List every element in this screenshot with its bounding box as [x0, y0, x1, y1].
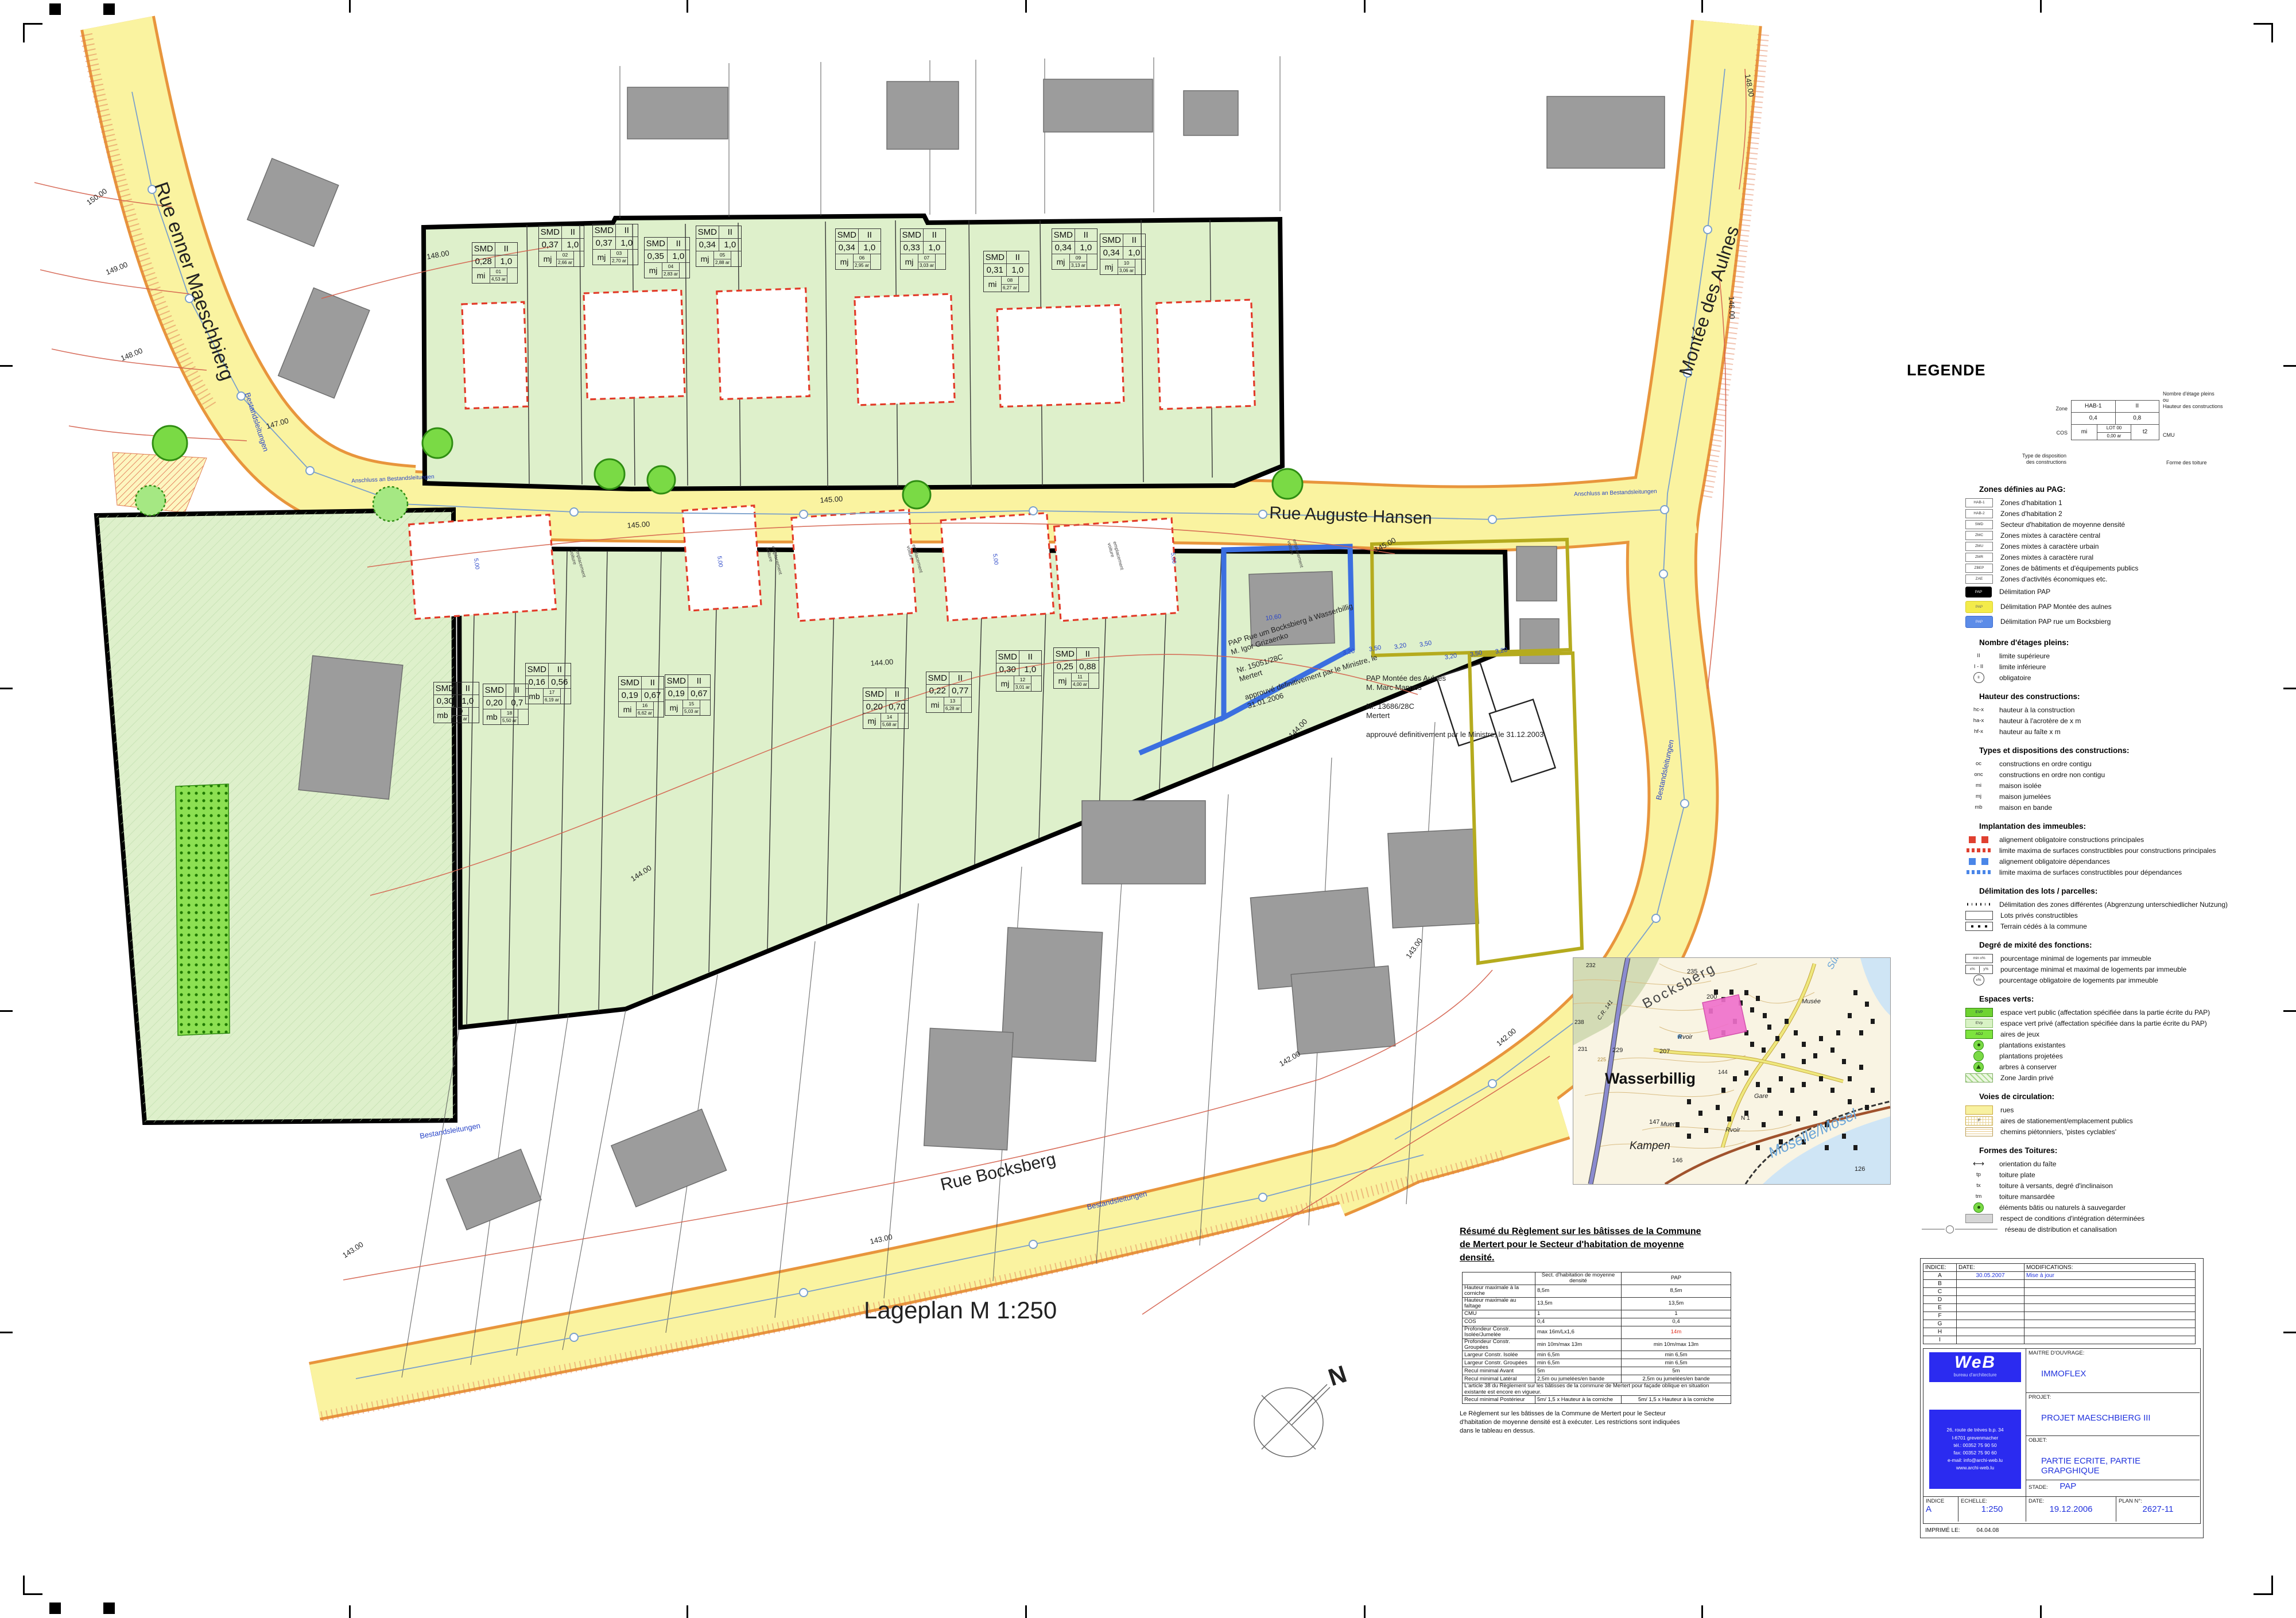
- splitbox-swatch-icon: x%y%: [1965, 965, 1993, 974]
- lot-row: 0,351,0: [645, 250, 689, 263]
- lot-number: 06: [854, 254, 870, 262]
- address-line: www.archi-web.lu: [1929, 1464, 2021, 1472]
- lot-mid: 103,06 ar: [1118, 259, 1135, 274]
- regulation-cell: COS: [1463, 1318, 1535, 1326]
- architect-logo: WeB bureau d'architecture: [1929, 1352, 2021, 1382]
- legend-item-label: pourcentage obligatoire de logements par…: [1999, 976, 2158, 984]
- architect-address: 26, route de trèves b.p. 34l-6701 greven…: [1929, 1410, 2021, 1489]
- legend-item-label: plantations projetées: [1999, 1052, 2063, 1060]
- inset-label-n235: 235: [1687, 968, 1697, 976]
- printed-date: IMPRIMÉ LE: 04.04.08: [1925, 1527, 1999, 1534]
- lot-storeys: II: [1007, 251, 1029, 263]
- lot-zone: SMD: [434, 682, 457, 694]
- lot-row: SMDII: [539, 226, 584, 239]
- logo-name: WeB: [1929, 1352, 2021, 1373]
- lot-row: 0,301,0: [434, 695, 479, 708]
- legend-item: tptoiture plate: [1965, 1169, 2296, 1180]
- zonebox-swatch-icon: ZMR: [1965, 553, 1993, 562]
- indices-row: C: [1923, 1288, 2196, 1296]
- inset-label-kampen: Kampen: [1630, 1140, 1670, 1153]
- reddash-swatch-icon: [1965, 847, 1992, 855]
- lot-cos: 0,37: [593, 237, 616, 249]
- lot-row: mb176,19 ar: [526, 689, 571, 704]
- lot-zone: SMD: [984, 251, 1007, 263]
- lot-label-03: SMDII0,371,0mj032,70 ar: [592, 224, 638, 265]
- lot-row: mj103,06 ar: [1100, 259, 1145, 274]
- legend-item-label: Secteur d'habitation de moyenne densité: [2000, 521, 2125, 529]
- lot-empty-cell: [700, 700, 710, 715]
- text-swatch-icon: ha-x: [1965, 717, 1992, 725]
- indices-date: [1957, 1312, 2024, 1320]
- lot-row: mj123,01 ar: [996, 676, 1041, 691]
- lot-cos: 0,34: [1100, 247, 1123, 259]
- lot-row: mi136,28 ar: [926, 697, 971, 712]
- indices-modification: [2024, 1320, 2196, 1328]
- lot-row: SMDII: [696, 226, 741, 239]
- lot-row: SMDII: [645, 238, 689, 250]
- lot-cos: 0,19: [665, 688, 688, 700]
- lot-area: 3,03 ar: [918, 262, 935, 270]
- legend-item: Lots privés constructibles: [1965, 910, 2296, 921]
- legend-item: plantations existantes: [1965, 1039, 2296, 1050]
- lot-row: SMDII: [619, 677, 664, 689]
- lot-type: mi: [984, 277, 1002, 292]
- key-callout-floors: Nombre d'étage pleins ou Hauteur des con…: [2163, 391, 2263, 409]
- legend-item: limite maxima de surfaces constructibles…: [1965, 845, 2296, 856]
- legend-item-label: réseau de distribution et canalisation: [2005, 1225, 2117, 1233]
- legend-item: réseau de distribution et canalisation: [1922, 1224, 2296, 1235]
- inset-label-wasserbillig: Wasserbillig: [1605, 1070, 1696, 1088]
- projet-value: PROJET MAESCHBIERG III: [2041, 1413, 2197, 1423]
- key-area: 0,00 ar: [2097, 433, 2131, 440]
- regulation-row: Recul minimal Avant5m5m: [1463, 1367, 1731, 1375]
- adj-swatch-icon: ADJ: [1965, 1030, 1993, 1039]
- lot-label-19: SMDII0,301,0mb194,55 ar: [433, 682, 479, 723]
- legend-item-label: maison jumelées: [1999, 793, 2051, 801]
- lot-number: 15: [683, 700, 700, 708]
- legend-item: plantations projetées: [1965, 1050, 2296, 1061]
- regulation-col-header: [1463, 1272, 1535, 1285]
- regulation-cell: 1: [1535, 1310, 1622, 1318]
- field-echelle: ECHELLE: 1:250: [1958, 1496, 2026, 1522]
- legend-item-label: toiture plate: [1999, 1171, 2035, 1179]
- indices-date: [1957, 1320, 2024, 1328]
- legend-item-label: alignement obligatoire constructions pri…: [1999, 836, 2144, 844]
- inset-label-muer: Muer: [1661, 1121, 1675, 1128]
- legend-item-label: Zones d'habitation 1: [2000, 499, 2062, 507]
- lot-label-04: SMDII0,351,0mj042,83 ar: [644, 237, 690, 278]
- lot-zone: SMD: [483, 684, 506, 696]
- indices-date: [1957, 1280, 2024, 1288]
- legend-item: alignement obligatoire dépendances: [1965, 856, 2296, 867]
- lot-storeys: II: [642, 677, 664, 689]
- lot-mid: 014,53 ar: [490, 268, 507, 283]
- field-stade: STADE: PAP: [2026, 1480, 2200, 1496]
- inset-label-n231: 231: [1578, 1046, 1588, 1053]
- legend-item: tmtoiture mansardée: [1965, 1191, 2296, 1202]
- indices-modification: Mise à jour: [2024, 1272, 2196, 1280]
- regulation-row: Largeur Constr. Isoléemin 6,5mmin 6,5m: [1463, 1351, 1731, 1359]
- inset-label-n146: 146: [1672, 1157, 1682, 1165]
- legend-item-label: toiture à versants, degré d'inclinaison: [1999, 1182, 2113, 1190]
- key-roof: t2: [2131, 425, 2159, 440]
- indices-header-row: INDICE:DATE:MODIFICATIONS:: [1923, 1264, 2196, 1272]
- lot-zone: SMD: [926, 672, 949, 684]
- legend-item: x%pourcentage obligatoire de logements p…: [1965, 975, 2296, 985]
- indices-row: B: [1923, 1280, 2196, 1288]
- lot-cmu: 0,67: [688, 688, 711, 700]
- circtext-swatch-icon: II: [1965, 674, 1992, 682]
- field-objet: OBJET: PARTIE ECRITE, PARTIE GRAPGHIQUE: [2026, 1436, 2200, 1480]
- indice-label: INDICE: [1926, 1498, 1956, 1504]
- legend-section-header: Délimitation des lots / parcelles:: [1979, 887, 2296, 895]
- regulation-row: L'article 38 du Règlement sur les bâtiss…: [1463, 1383, 1731, 1396]
- lot-row: 0,331,0: [901, 242, 945, 254]
- lot-zone: SMD: [1100, 234, 1123, 246]
- lot-row: mj062,95 ar: [836, 254, 881, 269]
- lot-cos: 0,19: [619, 689, 642, 701]
- plan-sheet: Rue enner MaeschbiergRue Auguste HansenM…: [0, 0, 2296, 1618]
- lot-zone: SMD: [645, 238, 668, 250]
- inset-label-n232: 232: [1586, 963, 1596, 969]
- text-swatch-icon: II: [1965, 652, 1992, 660]
- lot-row: SMDII: [984, 251, 1029, 264]
- lot-number: 13: [944, 697, 961, 705]
- lot-zone: SMD: [901, 229, 924, 241]
- lot-area: 6,62 ar: [637, 710, 653, 717]
- lot-zone: SMD: [696, 226, 719, 238]
- lot-empty-cell: [731, 251, 741, 266]
- lot-mid: 166,62 ar: [637, 702, 654, 717]
- regulation-row: Profondeur Constr. Groupéesmin 10m/max 1…: [1463, 1338, 1731, 1351]
- lot-empty-cell: [469, 708, 479, 723]
- lot-cmu: 0,56: [549, 676, 571, 688]
- circdot-swatch-icon: [1965, 1204, 1992, 1212]
- regulation-row: Profondeur Constr. Isolée/Jumeléemax 16m…: [1463, 1326, 1731, 1338]
- lot-row: SMDII: [836, 229, 881, 242]
- lot-storeys: II: [688, 675, 711, 687]
- lot-cos: 0,20: [483, 697, 506, 709]
- key-zone: HAB-1: [2072, 401, 2116, 412]
- lot-row: 0,311,0: [984, 264, 1029, 277]
- lot-row: mj042,83 ar: [645, 263, 689, 278]
- indices-letter: H: [1923, 1328, 1957, 1336]
- lot-cos: 0,31: [984, 264, 1007, 276]
- lot-empty-cell: [1135, 259, 1145, 274]
- legend-item-label: hauteur à l'acrotère de x m: [1999, 717, 2081, 725]
- lot-label-11: SMDII0,250,88mj114,00 ar: [1053, 647, 1099, 689]
- indices-date: [1957, 1296, 2024, 1304]
- regulation-cell: 2,5m ou jumelées/en bande: [1535, 1375, 1622, 1383]
- indices-date: [1957, 1288, 2024, 1296]
- lot-cos: 0,34: [696, 239, 719, 251]
- legend-item: Paires de stationement/emplacement publi…: [1965, 1115, 2296, 1126]
- inset-label-n225: 225: [1597, 1057, 1606, 1063]
- lot-row: 0,190,67: [619, 689, 664, 702]
- lot-row: mi014,53 ar: [472, 268, 517, 283]
- lot-mid: 032,70 ar: [611, 250, 628, 265]
- legend-item: PAPDélimitation PAP rue um Bocksbierg: [1965, 614, 2296, 629]
- plan-no-value: 2627-11: [2119, 1504, 2197, 1514]
- lot-mid: 062,95 ar: [854, 254, 871, 269]
- lot-empty-cell: [1089, 673, 1099, 688]
- lot-area: 4,55 ar: [452, 716, 468, 723]
- echelle-value: 1:250: [1961, 1504, 2023, 1514]
- legend-item-label: Zones mixtes à caractère rural: [2000, 553, 2093, 561]
- legend-item: min x%pourcentage minimal de logements p…: [1965, 953, 2296, 964]
- lot-number: 03: [611, 250, 627, 258]
- location-inset-map: BocksbergWasserbilligKampenMoselle/Mosel…: [1573, 957, 1891, 1185]
- lot-cos: 0,37: [539, 239, 562, 251]
- lot-storeys: II: [886, 688, 909, 700]
- title-block-main: WeB bureau d'architecture 26, route de t…: [1923, 1348, 2201, 1524]
- indices-date: [1957, 1336, 2024, 1344]
- lot-row: SMDII: [1054, 648, 1099, 661]
- lot-zone: SMD: [836, 229, 859, 241]
- circtri-swatch-icon: [1965, 1063, 1992, 1071]
- indices-modification: [2024, 1288, 2196, 1296]
- legend-item: IIobligatoire: [1965, 672, 2296, 683]
- inset-label-n200: 200: [1707, 994, 1717, 1001]
- lot-area: 3,13 ar: [1070, 262, 1087, 270]
- lot-row: SMDII: [526, 664, 571, 676]
- legend-item-label: plantations existantes: [1999, 1041, 2065, 1049]
- legend-item: mimaison isolée: [1965, 780, 2296, 791]
- lot-mid: 093,13 ar: [1070, 254, 1087, 269]
- inset-label-n229: 229: [1612, 1047, 1623, 1054]
- lot-empty-cell: [1019, 277, 1029, 292]
- inset-label-bocksberg: Bocksberg: [1640, 960, 1719, 1012]
- legend-section-header: Espaces verts:: [1979, 995, 2296, 1003]
- lot-number: 18: [501, 709, 518, 717]
- inset-label-n126: 126: [1855, 1166, 1865, 1173]
- papblack-swatch-icon: PAP: [1965, 587, 1992, 597]
- regulation-row: Recul minimal Postérieur5m/ 1,5 x Hauteu…: [1463, 1396, 1731, 1404]
- regulation-cell: CMU: [1463, 1310, 1535, 1318]
- lot-mid: 073,03 ar: [918, 254, 936, 269]
- indices-letter: G: [1923, 1320, 1957, 1328]
- lot-row: 0,341,0: [836, 242, 881, 254]
- lot-row: 0,341,0: [1100, 247, 1145, 259]
- lot-row: SMDII: [483, 684, 528, 697]
- inset-label-rvoir2: Rvoir: [1725, 1127, 1740, 1134]
- regulation-cell: Recul minimal Avant: [1463, 1367, 1535, 1375]
- legend-key-diagram: Zone Nombre d'étage pleins ou Hauteur de…: [1907, 379, 2296, 476]
- indices-letter: F: [1923, 1312, 1957, 1320]
- lot-number: 14: [881, 713, 898, 721]
- indices-modification: [2024, 1296, 2196, 1304]
- indices-header-indice: INDICE:: [1923, 1264, 1957, 1272]
- lot-label-13: SMDII0,220,77mi136,28 ar: [926, 672, 972, 713]
- regulation-heading: Résumé du Règlement sur les bâtisses de …: [1460, 1225, 1708, 1265]
- lot-mid: 176,19 ar: [544, 689, 561, 704]
- lot-cos: 0,16: [526, 676, 549, 688]
- legend-item: EVPespace vert public (affectation spéci…: [1965, 1007, 2296, 1018]
- key-callout-zone: Zone: [2010, 406, 2068, 412]
- logo-tagline: bureau d'architecture: [1929, 1373, 2021, 1378]
- indices-row: F: [1923, 1312, 2196, 1320]
- plan-no-label: PLAN N°:: [2119, 1498, 2197, 1504]
- address-line: fax: 00352 75 90 60: [1929, 1449, 2021, 1457]
- indices-modification: [2024, 1336, 2196, 1344]
- legend-item: HAB-1Zones d'habitation 1: [1965, 497, 2296, 508]
- legend-item-label: Délimitation PAP rue um Bocksbierg: [2000, 618, 2111, 626]
- lot-label-09: SMDII0,341,0mj093,13 ar: [1052, 228, 1097, 270]
- legend-sections: Zones définies au PAG:HAB-1Zones d'habit…: [1907, 485, 2296, 1235]
- legend-item: chemins piétonniers, 'pistes cyclables': [1965, 1126, 2296, 1137]
- regulation-cell: min 10m/max 13m: [1622, 1338, 1731, 1351]
- bluesq-swatch-icon: [1965, 857, 1992, 866]
- lot-label-01: SMDII0,281,0mi014,53 ar: [472, 242, 518, 284]
- lot-storeys: II: [719, 226, 742, 238]
- legend-item: ZMCZones mixtes à caractère central: [1965, 530, 2296, 541]
- lot-empty-cell: [1031, 676, 1041, 691]
- yellowbox-swatch-icon: [1965, 1105, 1993, 1115]
- legend-item: rues: [1965, 1104, 2296, 1115]
- regulation-cell: 2,5m ou jumelées/en bande: [1622, 1375, 1731, 1383]
- circtext-swatch-icon: x%: [1965, 976, 1992, 984]
- regulation-row: Hauteur maximale à la corniche8,5m8,5m: [1463, 1285, 1731, 1297]
- lot-area: 4,00 ar: [1072, 681, 1088, 689]
- indices-date: [1957, 1328, 2024, 1336]
- legend-item-label: Zones mixtes à caractère urbain: [2000, 542, 2099, 550]
- lot-label-06: SMDII0,341,0mj062,95 ar: [835, 228, 881, 270]
- legend-item-label: Zones d'activités économiques etc.: [2000, 575, 2107, 583]
- lot-type: mb: [434, 708, 452, 723]
- lot-mid: 155,03 ar: [683, 700, 700, 715]
- regulation-cell: min 10m/max 13m: [1535, 1338, 1622, 1351]
- legend-item: limite maxima de surfaces constructibles…: [1965, 867, 2296, 878]
- inset-label-musee: Musée: [1802, 998, 1821, 1006]
- legend-item: x%y%pourcentage minimal et maximal de lo…: [1965, 964, 2296, 975]
- lot-cmu: 1,0: [924, 242, 946, 254]
- indices-row: A30.05.2007Mise à jour: [1923, 1272, 2196, 1280]
- regulation-cell: 8,5m: [1535, 1285, 1622, 1297]
- legend-item: mbmaison en bande: [1965, 802, 2296, 813]
- revision-table: INDICE:DATE:MODIFICATIONS:A30.05.2007Mis…: [1923, 1263, 2196, 1344]
- regulation-cell: min 6,5m: [1622, 1351, 1731, 1359]
- lot-cos: 0,30: [434, 695, 457, 707]
- legend-item-label: Zones mixtes à caractère central: [2000, 531, 2100, 540]
- text-swatch-icon: tx: [1965, 1182, 1992, 1190]
- legend-section-header: Formes des Toitures:: [1979, 1146, 2296, 1155]
- indices-modification: [2024, 1328, 2196, 1336]
- legend-item-label: constructions en ordre contigu: [1999, 760, 2092, 768]
- regulation-paragraph: Le Règlement sur les bâtisses de la Comm…: [1460, 1410, 1695, 1435]
- lot-type: mi: [472, 268, 490, 283]
- evp-swatch-icon: EVP: [1965, 1008, 1993, 1017]
- lot-storeys: II: [1019, 651, 1042, 663]
- lot-row: 0,341,0: [1052, 242, 1097, 254]
- indices-row: H: [1923, 1328, 2196, 1336]
- indice-value: A: [1926, 1504, 1956, 1514]
- lot-type: mj: [901, 254, 918, 269]
- lot-type: mj: [696, 251, 714, 266]
- lot-row: SMDII: [1052, 229, 1097, 242]
- lot-row: SMDII: [1100, 234, 1145, 247]
- lot-row: 0,200,7: [483, 697, 528, 709]
- field-projet: PROJET: PROJET MAESCHBIERG III: [2026, 1393, 2200, 1436]
- zonebox-swatch-icon: HAB-2: [1965, 509, 1993, 518]
- lot-type: mj: [996, 676, 1014, 691]
- lot-row: 0,371,0: [539, 239, 584, 251]
- lot-empty-cell: [961, 697, 971, 712]
- text-swatch-icon: mi: [1965, 782, 1992, 790]
- regulation-cell: min 6,5m: [1535, 1351, 1622, 1359]
- lot-cmu: 1,0: [1007, 264, 1029, 276]
- lot-cos: 0,28: [472, 255, 495, 267]
- lot-number: 07: [918, 254, 935, 262]
- lot-storeys: II: [1075, 229, 1097, 241]
- lot-row: mj052,88 ar: [696, 251, 741, 266]
- indices-letter: C: [1923, 1288, 1957, 1296]
- field-date: DATE: 19.12.2006: [2026, 1496, 2116, 1522]
- regulation-cell: 5m/ 1,5 x Hauteur à la corniche: [1622, 1396, 1731, 1404]
- lot-cos: 0,25: [1054, 661, 1077, 673]
- lot-storeys: II: [924, 229, 946, 241]
- lot-number: 16: [637, 702, 653, 710]
- minbox-swatch-icon: min x%: [1965, 954, 1993, 963]
- legend-section-header: Hauteur des constructions:: [1979, 692, 2296, 701]
- objet-label: OBJET:: [2029, 1437, 2197, 1444]
- zonebox-swatch-icon: ZMU: [1965, 542, 1993, 551]
- regulation-row: Largeur Constr. Groupéesmin 6,5mmin 6,5m: [1463, 1359, 1731, 1367]
- legend-item: Terrain cédés à la commune: [1965, 921, 2296, 932]
- lot-zone: SMD: [619, 677, 642, 689]
- lot-label-12: SMDII0,301,0mj123,01 ar: [996, 650, 1042, 692]
- legend-item: mjmaison jumelées: [1965, 791, 2296, 802]
- inset-label-n207: 207: [1659, 1048, 1670, 1056]
- legend-item-label: limite maxima de surfaces constructibles…: [1999, 847, 2216, 855]
- legend-item-label: Délimitation PAP Montée des aulnes: [2000, 603, 2112, 611]
- inset-label-sure: Sûre/Sauer: [1825, 957, 1858, 971]
- legend-item: ZMRZones mixtes à caractère rural: [1965, 552, 2296, 562]
- indices-row: I: [1923, 1336, 2196, 1344]
- maitre-value: IMMOFLEX: [2041, 1369, 2197, 1379]
- zonebox-swatch-icon: ZMC: [1965, 531, 1993, 540]
- regulation-cell: max 16m/Lx1,6: [1535, 1326, 1622, 1338]
- lot-area: 3,01 ar: [1014, 684, 1031, 692]
- key-callout-type: Type de disposition des constructions: [1975, 453, 2066, 465]
- indices-header-date: DATE:: [1957, 1264, 2024, 1272]
- linecircle-swatch-icon: [1922, 1225, 1998, 1233]
- lot-label-02: SMDII0,371,0mj022,66 ar: [538, 226, 584, 267]
- key-cmu: 0,8: [2116, 413, 2159, 424]
- linesbox-swatch-icon: [1965, 1127, 1993, 1136]
- legend-item-label: Terrain cédés à la commune: [2000, 922, 2087, 930]
- lot-label-17: SMDII0,160,56mb176,19 ar: [525, 663, 571, 704]
- legend-item-label: limite supérieure: [1999, 652, 2050, 660]
- zonebox-swatch-icon: SMD: [1965, 520, 1993, 529]
- lot-type: mj: [665, 700, 683, 715]
- legend-item-label: hauteur au faîte x m: [1999, 728, 2061, 736]
- regulation-cell: Recul minimal Latéral: [1463, 1375, 1535, 1383]
- legend-item: ⟷orientation du faîte: [1965, 1158, 2296, 1169]
- lot-cmu: 0,77: [949, 685, 972, 697]
- regulation-cell: 5m/ 1,5 x Hauteur à la corniche: [1535, 1396, 1622, 1404]
- lot-cmu: 1,0: [495, 255, 518, 267]
- indices-date: 30.05.2007: [1957, 1272, 2024, 1280]
- lot-cmu: 1,0: [1123, 247, 1146, 259]
- legend-item-label: Zone Jardin privé: [2000, 1074, 2054, 1082]
- regulation-cell: min 6,5m: [1535, 1359, 1622, 1367]
- lot-storeys: II: [859, 229, 881, 241]
- graybox-swatch-icon: [1965, 1214, 1993, 1223]
- regulation-cell: 8,5m: [1622, 1285, 1731, 1297]
- dotbox-swatch-icon: [1965, 922, 1993, 931]
- legend-item: alignement obligatoire constructions pri…: [1965, 834, 2296, 845]
- address-line: tél.: 00352 75 90 50: [1929, 1442, 2021, 1449]
